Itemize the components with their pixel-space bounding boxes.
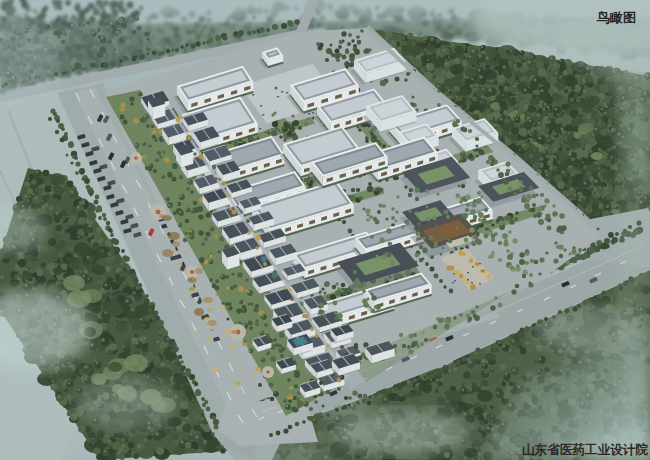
svg-text:鸟瞰图: 鸟瞰图 — [596, 10, 636, 25]
svg-text:山东省医药工业设计院: 山东省医药工业设计院 — [522, 442, 648, 457]
